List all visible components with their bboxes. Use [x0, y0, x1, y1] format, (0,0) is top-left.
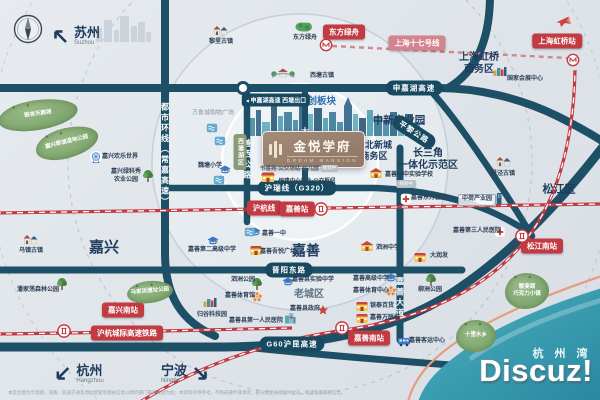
joy-world-ferris-icon: [89, 150, 103, 164]
poi-label-jiashan-senior: 嘉善高级中学: [353, 276, 389, 284]
poi-label-fengjing-town: 枫泾古镇: [491, 171, 515, 179]
lili-town-town-icon: [213, 25, 230, 36]
road-label-g60: G60沪昆高速: [259, 337, 324, 352]
road-label-jiashan-ave: 嘉善大道: [395, 277, 406, 319]
rail-label-jiaxing-south-st: 嘉兴南站: [102, 303, 144, 318]
rail-jiashan-railway-station-icon: [314, 202, 328, 216]
arrow-nw-icon: [50, 26, 70, 46]
poi-label-lili-town: 黎里古镇: [209, 39, 233, 47]
direction-suzhou-cn: 苏州: [74, 26, 100, 40]
fengjing-town-town-icon: [496, 156, 513, 167]
poi-label-sizhong-school: 嘉善四中实验学校: [385, 172, 433, 180]
direction-hangzhou-cn: 杭州: [76, 364, 103, 378]
area-label-wanxiang: 万象城购物广场: [192, 110, 234, 117]
disclaimer-text: 本区位图为示意图，道路、轨道交通及周边配套等相关信息以政府部门最终规划为准；本资…: [8, 390, 358, 396]
direction-suzhou: 苏州Suzhou: [50, 26, 100, 46]
direction-hangzhou: 杭州Hangzhou: [52, 364, 103, 384]
brand-bars-icon: [269, 140, 282, 159]
rail-label-metro-line17: 上海十七号线: [389, 36, 446, 51]
xitang-town-town2-icon: [271, 67, 295, 79]
poi-label-county-gov: 嘉善县政府: [290, 306, 320, 314]
project-note-tag: 规划中: [321, 165, 339, 172]
poi-layer: 嘉兴嘉善松江区老城区科创板块中新产业园上海虹桥 商务区城北新城 商务区长三角 一…: [0, 0, 600, 400]
rail-label-dongfanglvzhou-st: 东方绿舟: [323, 25, 365, 40]
pond-icon-0: [215, 137, 226, 146]
poi-label-liuzhou-park: 柳洲公园: [418, 287, 442, 295]
rt-mart-mall-icon: [414, 252, 427, 263]
wanliancheng-mall-icon: [356, 313, 369, 324]
road-label-jinyang-rd: 晋阳东路: [265, 263, 313, 278]
area-label-jiaxing: 嘉兴: [89, 239, 119, 257]
yintai-mall-icon: [356, 301, 369, 312]
poi-label-guigu-tech: 归谷科技园: [197, 312, 227, 320]
jiashan-no2-high-school-icon: [207, 236, 219, 246]
project-name: 金悦学府: [294, 136, 352, 155]
road-label-xitang-lake: 西塘湖区: [234, 134, 247, 170]
direction-hangzhou-en: Hangzhou: [76, 378, 103, 384]
poi-label-joy-world: 嘉兴欢乐世界: [102, 154, 138, 162]
poi-label-dongfang-hospital: 嘉善东方医院: [411, 195, 447, 203]
sizhou-middle-schoolhouse-icon: [360, 241, 374, 252]
rail-songjiang-south-railway-station-icon: [515, 229, 529, 243]
location-map: 嘉兴嘉善松江区老城区科创板块中新产业园上海虹桥 商务区城北新城 商务区长三角 一…: [0, 0, 600, 400]
poi-label-jiashan-exp-middle: 嘉善县实验中学: [292, 277, 334, 285]
area-label-songjiang: 松江区: [543, 183, 576, 196]
project-name-en: DREAM MANSION: [287, 156, 358, 163]
poi-label-sizhou-middle: 泗洲中学: [376, 245, 400, 253]
poi-label-no1-hospital: 嘉善县第一人民医院: [229, 318, 283, 326]
metro-hongqiao-metro-station-icon: [567, 54, 580, 67]
compass-icon: [10, 11, 46, 47]
arrow-sw-icon: [52, 364, 72, 384]
arrow-se-icon: [191, 364, 211, 384]
poi-label-sizhou-park: 泗洲公园: [231, 277, 255, 285]
expo-center-expo-icon: [493, 66, 507, 77]
pond-icon-4: [207, 124, 218, 133]
poi-label-bus-center: 嘉善客运中心: [409, 338, 445, 346]
direction-ningbo: 宁波Ningbo: [161, 364, 211, 384]
poi-label-lvkexiu-agri: 嘉兴绿科秀 农业公园: [111, 169, 141, 185]
poi-label-expo-center: 国家会展中心: [507, 76, 543, 84]
poi-label-weitang-primary: 魏塘小学: [198, 163, 222, 171]
dongfanglvzhou-island-icon: [293, 21, 313, 34]
sizhong-school-schoolhouse-icon: [369, 168, 383, 179]
direction-suzhou-en: Suzhou: [74, 40, 100, 46]
poi-label-wanliancheng: 嘉善万联城: [370, 315, 400, 323]
wuzhen-town-town-icon: [23, 234, 40, 245]
poi-label-xitang-town: 西塘古镇: [310, 73, 334, 81]
watermark: Discuz!: [468, 353, 593, 389]
poi-label-dongfanglvzhou: 东方绿舟: [293, 35, 317, 43]
poi-label-sports-center: 嘉善体育中心: [353, 288, 389, 296]
park-majiabang-relic: 马家浜遗址公园: [126, 279, 174, 305]
park-shili-watertown: 十里水乡: [456, 320, 496, 352]
poi-label-wuzhen-town: 乌镇古镇: [19, 248, 43, 256]
poi-label-yintai: 银泰百货: [370, 303, 394, 311]
park-chocolate-town: 歌斐颂 巧克力小镇: [505, 273, 549, 309]
area-label-sizhong-plan: 规划中: [396, 180, 416, 188]
hongqiao-airplane-plane-icon: [554, 13, 574, 29]
road-label-xitang-exit: 申嘉湖高速 西塘出口: [242, 94, 310, 107]
guigu-tech-expo-icon: [203, 297, 217, 308]
pond-icon-1: [214, 176, 225, 185]
pond-icon-2: [245, 228, 256, 237]
poi-label-no3-hospital: 嘉善第三人民医院: [453, 228, 501, 236]
rail-label-huhang-line: 沪杭线: [247, 201, 282, 216]
rail-label-jiashan-south-st: 嘉善南站: [348, 331, 390, 346]
poi-label-jiashan-no1-high: 嘉善一中: [262, 231, 286, 239]
project-logo-card: 金悦学府 DREAM MANSION: [262, 131, 365, 168]
lvkexiu-agri-tree-icon: [143, 170, 154, 183]
metro-dongfanglvzhou-metro-station-icon: [320, 39, 333, 52]
area-label-jiashan: 嘉善: [292, 242, 320, 259]
dongfang-hospital-hospital-icon: [401, 194, 412, 205]
liuzhou-park-tree-icon: [426, 274, 437, 287]
poi-label-rt-mart: 大润发: [430, 253, 448, 261]
poi-label-jiashan-no2-high: 嘉善第二高级中学: [188, 247, 236, 255]
rail-jiaxing-south-railway-station-icon: [57, 324, 71, 338]
rail-jiashan-south-railway-station-icon: [335, 321, 349, 335]
rail-label-huhang-intercity: 沪杭城际高速铁路: [91, 326, 163, 341]
rail-label-jiashan-st: 嘉善站: [280, 202, 315, 217]
area-label-yitihua: 长三角 一体化示范区: [398, 148, 458, 172]
direction-ningbo-cn: 宁波: [161, 364, 187, 378]
hub-storefront-icon: [261, 171, 276, 183]
rail-label-hongqiao-st: 上海虹桥站: [532, 34, 582, 49]
road-label-ring-exp: 都市环线（常嘉高速）: [160, 103, 171, 208]
poi-label-sino-dutch-park: 中荷产业园: [458, 194, 496, 206]
direction-ningbo-en: Ningbo: [161, 378, 187, 384]
poi-label-panjiadang-forest: 潘家荡森林公园: [17, 287, 59, 295]
area-label-old-town: 老城区: [294, 289, 324, 301]
hub-label: 恒建中心商业·公交枢纽: [279, 178, 336, 185]
poi-label-wuyue-plaza: 嘉善吾悦广场: [260, 249, 296, 257]
road-label-shenjiahu-exp: 申嘉湖高速: [386, 81, 443, 96]
poi-label-gymnasium: 嘉善体育馆: [225, 293, 255, 301]
